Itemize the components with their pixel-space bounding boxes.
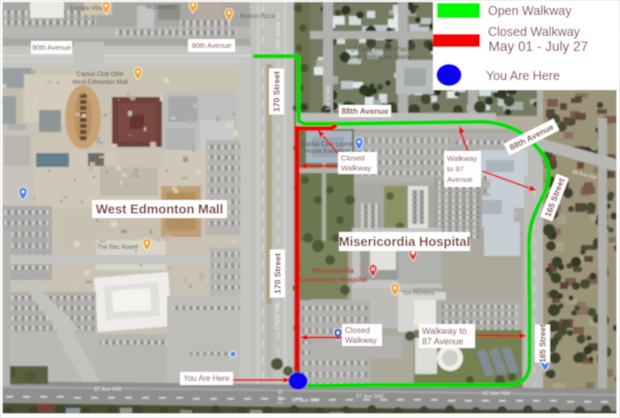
- svg-text:Closed: Closed: [345, 326, 370, 335]
- svg-text:Walkway to: Walkway to: [422, 326, 467, 336]
- svg-text:87 Ave NW: 87 Ave NW: [356, 394, 384, 400]
- svg-text:Cactus Club Cafe: Cactus Club Cafe: [76, 72, 124, 78]
- svg-text:Avenue: Avenue: [447, 175, 473, 184]
- svg-text:170 St NW: 170 St NW: [276, 21, 282, 48]
- svg-text:You Are Here: You Are Here: [486, 69, 560, 83]
- svg-text:Capital Care Lauriel: Capital Care Lauriel: [300, 142, 353, 148]
- svg-text:90th Avenue: 90th Avenue: [32, 45, 71, 52]
- svg-text:165 Street: 165 Street: [538, 324, 547, 363]
- svg-text:149 St NW: 149 St NW: [326, 86, 332, 110]
- svg-text:West Edmonton Mall: West Edmonton Mall: [96, 202, 224, 217]
- svg-text:90th Avenue: 90th Avenue: [192, 41, 232, 50]
- svg-text:Tim Hortons: Tim Hortons: [402, 291, 434, 297]
- svg-text:170 St: 170 St: [278, 389, 284, 404]
- svg-text:H: H: [371, 267, 375, 273]
- svg-text:Walkway: Walkway: [345, 336, 377, 345]
- svg-text:to 87: to 87: [447, 165, 464, 174]
- svg-text:87 Ave NW: 87 Ave NW: [483, 391, 511, 397]
- svg-text:AgeCare Jasper Place: AgeCare Jasper Place: [346, 46, 411, 53]
- svg-text:Misericordia Hospital: Misericordia Hospital: [339, 234, 470, 249]
- svg-text:Long Term Care Home: Long Term Care Home: [346, 54, 412, 61]
- svg-text:Closed Walkway: Closed Walkway: [488, 25, 581, 39]
- svg-text:170 Street: 170 Street: [272, 71, 282, 112]
- svg-text:87 Ave NW: 87 Ave NW: [94, 387, 122, 393]
- svg-text:McDonald's: McDonald's: [146, 5, 177, 11]
- svg-text:88th Avenue: 88th Avenue: [342, 107, 390, 116]
- svg-text:170 Street: 170 Street: [273, 253, 283, 294]
- svg-text:Open Walkway: Open Walkway: [488, 4, 572, 18]
- svg-text:May 01 - July 27: May 01 - July 27: [489, 39, 589, 54]
- svg-text:Closed: Closed: [341, 154, 365, 163]
- svg-text:West Edmonton Mall: West Edmonton Mall: [72, 80, 127, 86]
- svg-text:Misericordia: Misericordia: [312, 268, 353, 275]
- svg-text:You Are Here: You Are Here: [183, 374, 229, 383]
- svg-text:Walkway: Walkway: [341, 164, 371, 173]
- svg-text:170 St NW: 170 St NW: [275, 303, 281, 330]
- svg-text:Boston Pizza: Boston Pizza: [240, 14, 276, 20]
- svg-text:Walkway: Walkway: [447, 154, 477, 163]
- svg-text:The Rec Room: The Rec Room: [97, 245, 137, 251]
- svg-text:87 Avenue: 87 Avenue: [422, 336, 464, 346]
- svg-text:Community Hospital: Community Hospital: [299, 277, 367, 284]
- svg-text:87 Ave NW: 87 Ave NW: [292, 398, 320, 404]
